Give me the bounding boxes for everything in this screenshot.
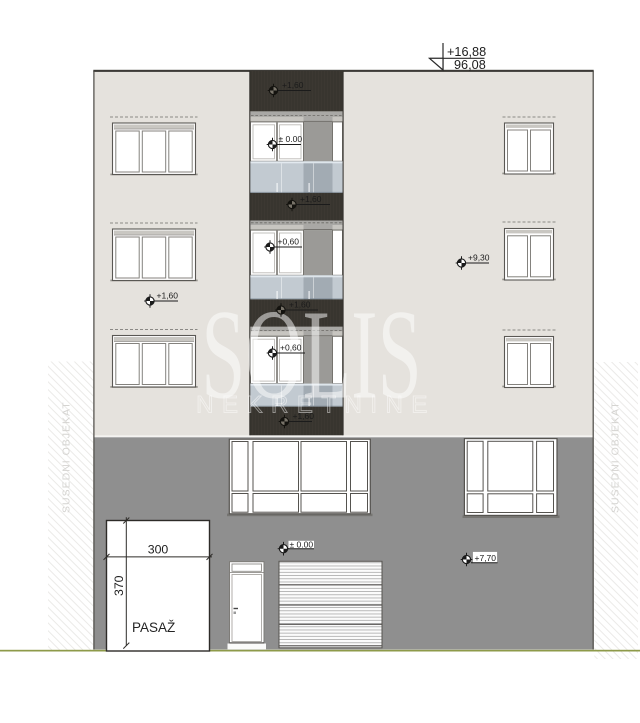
svg-text:± 0.00: ± 0.00 <box>279 134 303 144</box>
svg-text:NEKRETNINE: NEKRETNINE <box>196 392 436 419</box>
svg-text:+1,60: +1,60 <box>293 411 315 421</box>
svg-text:+7,70: +7,70 <box>475 553 497 563</box>
svg-text:300: 300 <box>148 543 169 557</box>
svg-text:+1,60: +1,60 <box>300 194 322 204</box>
svg-text:96,08: 96,08 <box>454 58 486 72</box>
svg-text:+1,60: +1,60 <box>289 300 311 310</box>
svg-text:370: 370 <box>112 575 126 596</box>
svg-text:+0,60: +0,60 <box>280 343 302 353</box>
svg-text:+1,60: +1,60 <box>282 80 304 90</box>
svg-text:± 0.00: ± 0.00 <box>290 539 314 549</box>
svg-text:+9,30: +9,30 <box>468 253 490 263</box>
svg-text:SUSEDNI OBJEKAT: SUSEDNI OBJEKAT <box>61 401 73 513</box>
svg-text:+0,60: +0,60 <box>278 237 300 247</box>
svg-text:SUSEDNI OBJEKAT: SUSEDNI OBJEKAT <box>610 401 622 513</box>
svg-text:PASAŽ: PASAŽ <box>132 620 175 635</box>
svg-text:+1,60: +1,60 <box>157 291 179 301</box>
